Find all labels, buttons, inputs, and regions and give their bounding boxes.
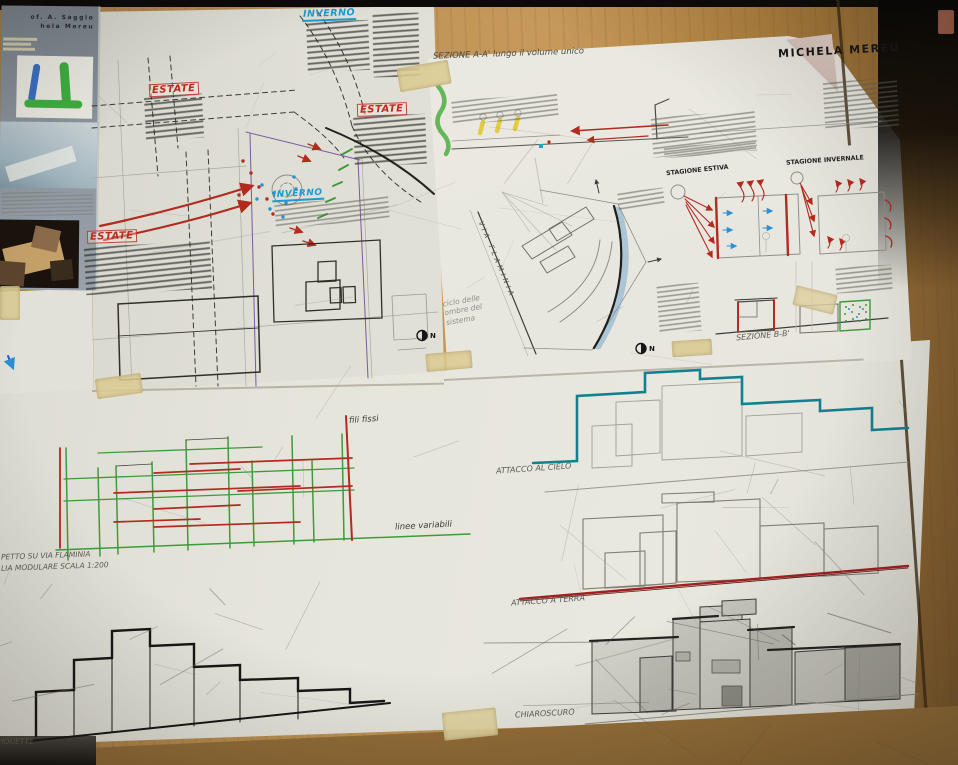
poster-credit-student: hela Mereu bbox=[40, 23, 94, 31]
handwritten-annotation bbox=[823, 78, 899, 130]
poster-render-image bbox=[0, 121, 97, 188]
label-inverno-top: INVERNO bbox=[302, 7, 357, 22]
label-estate-left: ESTATE bbox=[149, 82, 199, 98]
handwritten-annotation bbox=[84, 241, 212, 296]
handwritten-annotation bbox=[144, 94, 204, 141]
handwritten-annotation bbox=[353, 114, 427, 166]
north-letter: N bbox=[649, 345, 655, 353]
handwritten-annotation bbox=[306, 20, 370, 72]
tape-red bbox=[938, 10, 954, 34]
board-top-gap bbox=[0, 0, 958, 7]
label-estate-right: ESTATE bbox=[357, 102, 407, 117]
north-arrow-icon: N bbox=[416, 329, 436, 342]
label-estate-lower: ESTATE bbox=[87, 229, 137, 244]
model-shape bbox=[0, 261, 26, 287]
blue-path-shape bbox=[28, 63, 41, 102]
green-path-shape bbox=[59, 62, 71, 105]
label-fili-fissi: fili fissi bbox=[349, 414, 379, 426]
poster-credit-professor: of. A. Saggio bbox=[30, 14, 94, 22]
label-silhouette: SILHOUETTE bbox=[0, 737, 34, 746]
poster-model-photo bbox=[0, 219, 79, 288]
poster-caption-line bbox=[3, 48, 35, 51]
masking-tape bbox=[0, 286, 20, 320]
north-letter: N bbox=[430, 332, 436, 340]
poster-text-block bbox=[1, 192, 93, 217]
poster-caption-line bbox=[3, 38, 37, 41]
model-shape bbox=[50, 259, 74, 281]
green-base-shape bbox=[24, 99, 82, 108]
poster-caption-line bbox=[3, 43, 31, 46]
poster-diagram-panel bbox=[16, 55, 93, 118]
north-arrow-icon: N bbox=[635, 342, 655, 355]
masking-tape bbox=[442, 707, 499, 740]
photo-of-drafting-board: of. A. Saggio hela Mereu bbox=[0, 0, 958, 765]
masking-tape bbox=[671, 339, 712, 358]
handwritten-annotation bbox=[656, 283, 701, 334]
handwritten-annotation bbox=[835, 265, 892, 294]
